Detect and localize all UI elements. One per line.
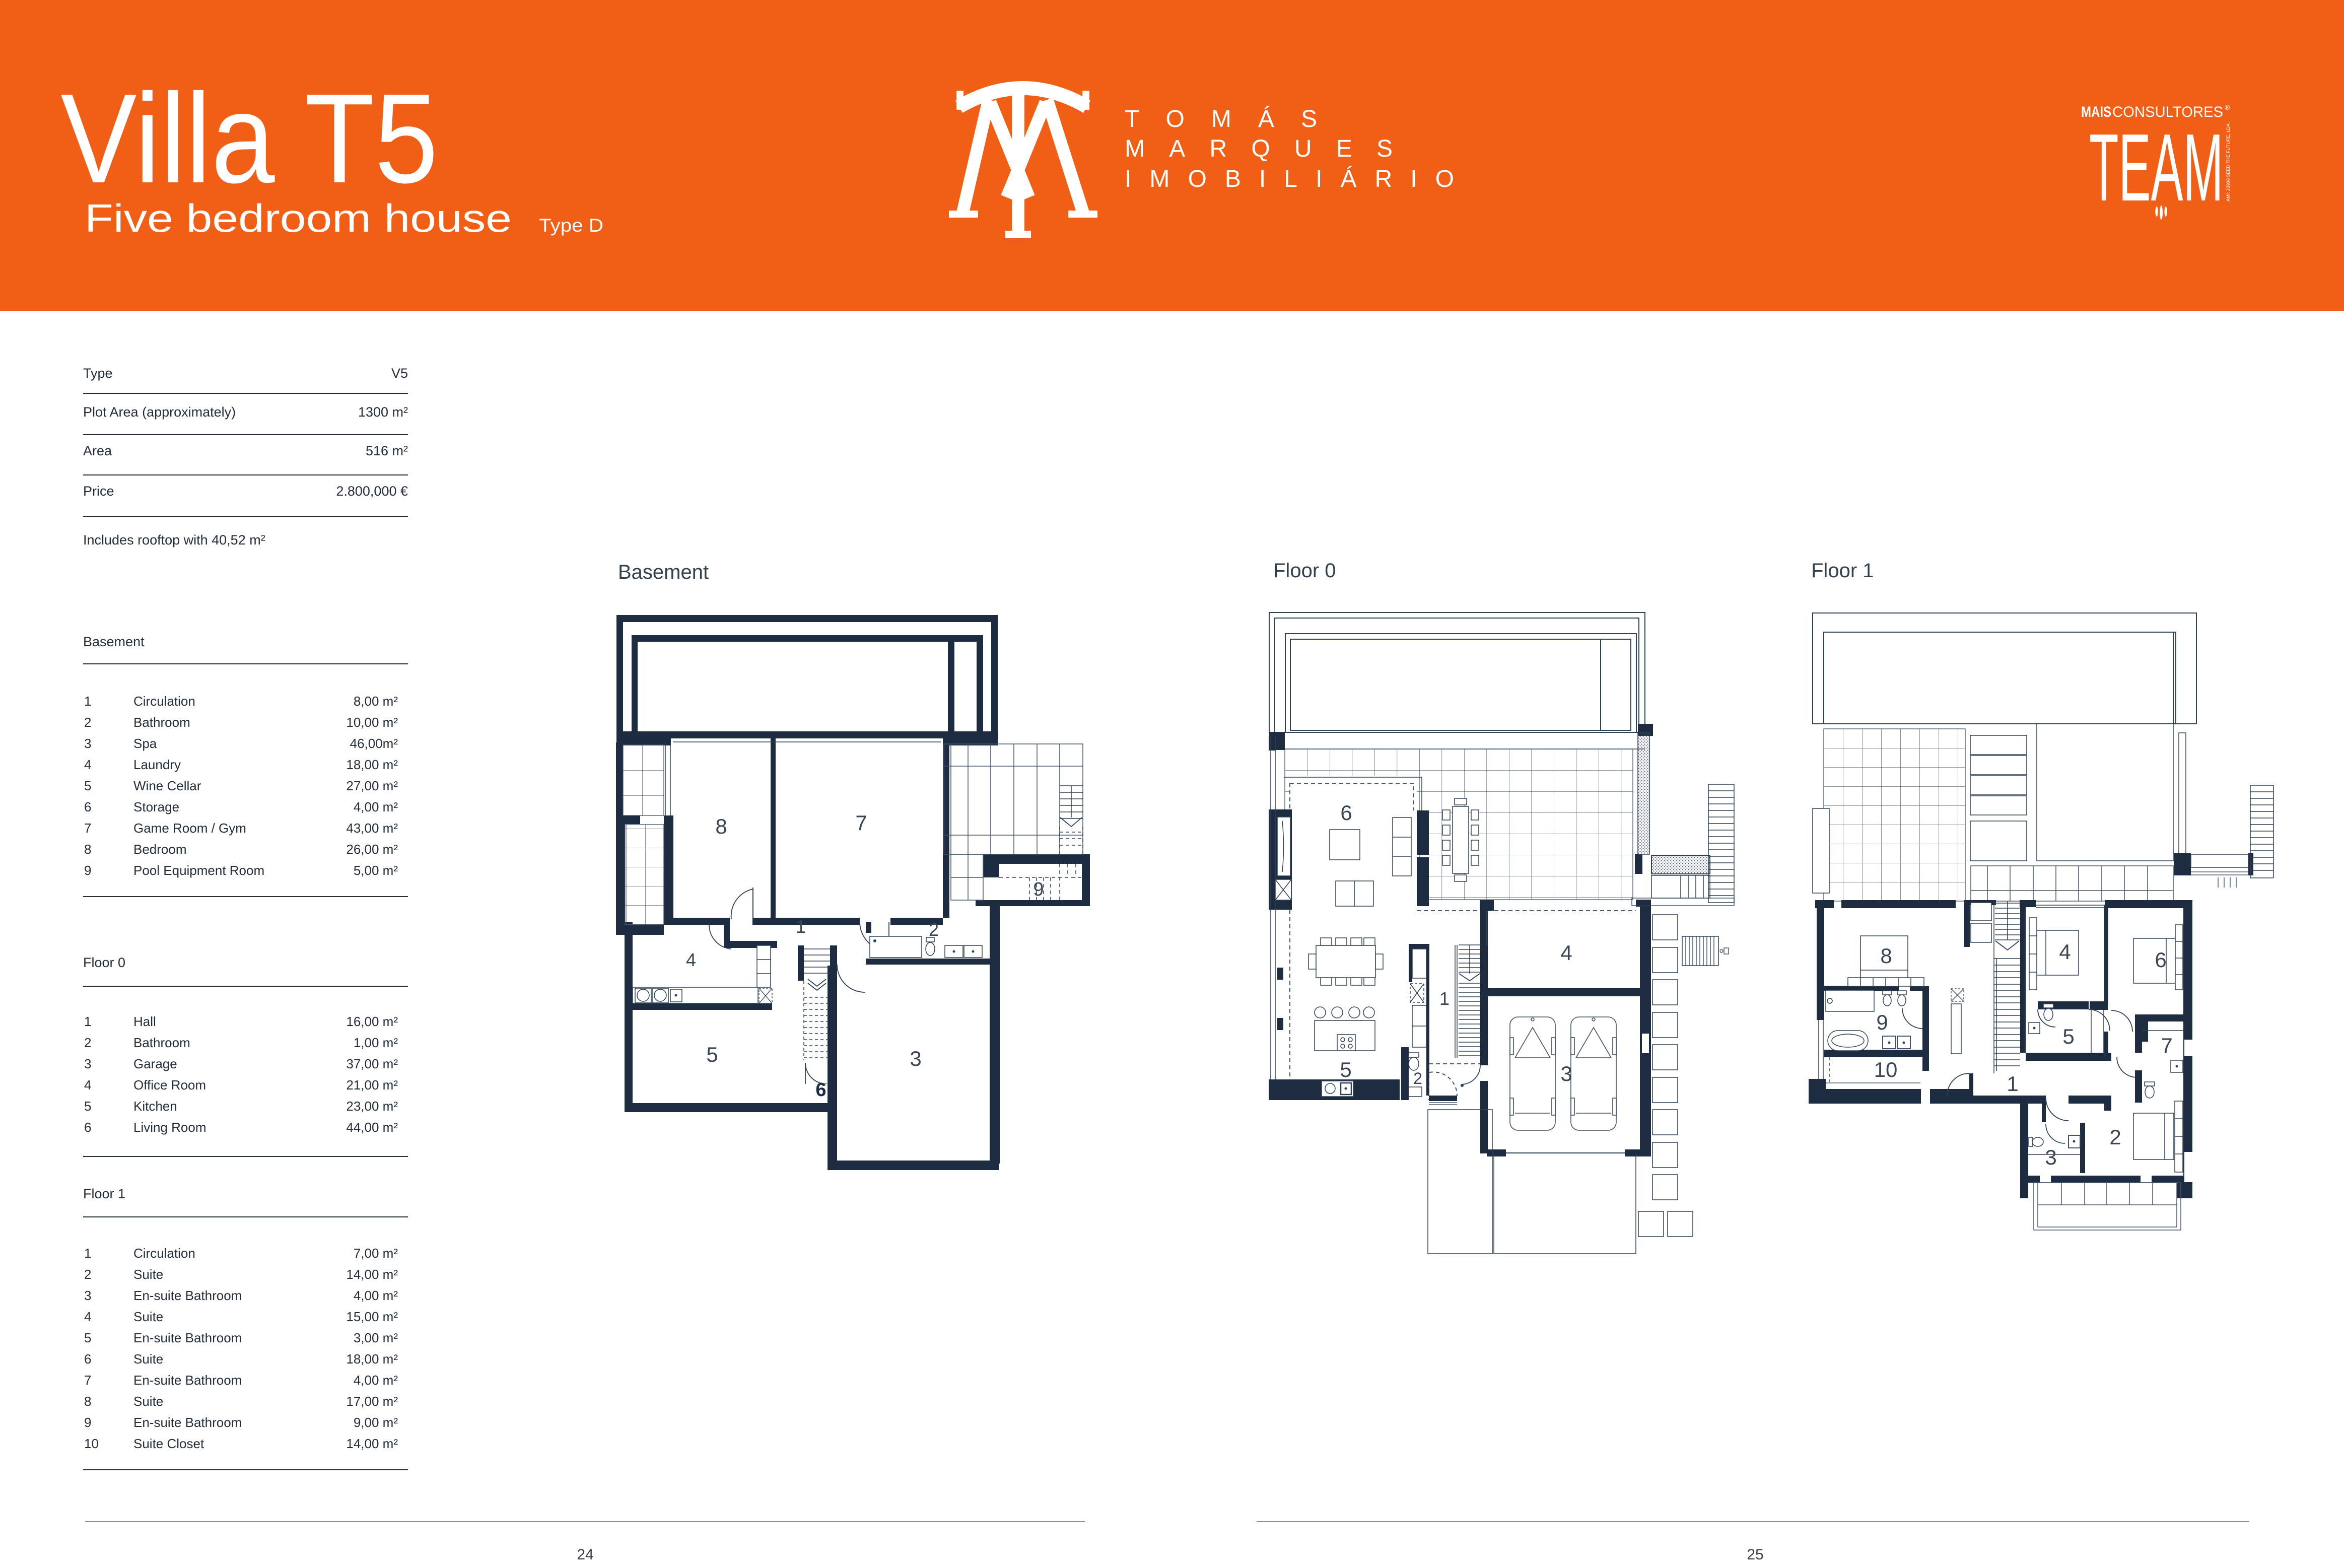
svg-text:4: 4 — [84, 757, 91, 772]
svg-text:Villa T5: Villa T5 — [60, 67, 438, 210]
svg-text:37,00 m²: 37,00 m² — [346, 1056, 398, 1071]
svg-text:44,00 m²: 44,00 m² — [346, 1120, 398, 1135]
svg-text:1: 1 — [1439, 988, 1450, 1009]
svg-text:18,00 m²: 18,00 m² — [346, 757, 398, 772]
svg-text:2: 2 — [84, 1267, 91, 1282]
svg-text:18,00 m²: 18,00 m² — [346, 1351, 398, 1367]
svg-text:16,00 m²: 16,00 m² — [346, 1014, 398, 1029]
svg-text:Includes rooftop with 40,52 m²: Includes rooftop with 40,52 m² — [83, 532, 265, 548]
svg-text:6: 6 — [815, 1079, 826, 1101]
svg-text:En-suite Bathroom: En-suite Bathroom — [133, 1330, 242, 1345]
svg-text:9: 9 — [1033, 879, 1044, 900]
svg-text:En-suite Bathroom: En-suite Bathroom — [133, 1415, 242, 1430]
svg-text:7: 7 — [84, 821, 91, 836]
svg-text:9: 9 — [84, 863, 91, 878]
svg-text:7,00 m²: 7,00 m² — [354, 1246, 398, 1261]
svg-text:26,00 m²: 26,00 m² — [346, 842, 398, 857]
svg-text:Basement: Basement — [618, 561, 709, 583]
svg-text:10: 10 — [84, 1436, 99, 1451]
svg-text:3: 3 — [2045, 1145, 2056, 1169]
svg-text:46,00m²: 46,00m² — [350, 736, 398, 751]
svg-text:21,00 m²: 21,00 m² — [346, 1077, 398, 1093]
svg-text:Floor 1: Floor 1 — [83, 1186, 125, 1201]
svg-text:6: 6 — [84, 1351, 91, 1367]
svg-text:2: 2 — [84, 715, 91, 730]
svg-text:Type: Type — [83, 366, 113, 381]
svg-text:En-suite Bathroom: En-suite Bathroom — [133, 1373, 242, 1388]
svg-text:Hall: Hall — [133, 1014, 156, 1029]
svg-text:Suite: Suite — [133, 1394, 163, 1409]
svg-text:Floor 0: Floor 0 — [83, 955, 125, 970]
svg-text:®: ® — [2225, 103, 2230, 111]
svg-text:Suite: Suite — [133, 1267, 163, 1282]
svg-text:2.800,000 €: 2.800,000 € — [336, 484, 408, 499]
svg-text:Bathroom: Bathroom — [133, 715, 190, 730]
svg-text:25: 25 — [1747, 1546, 1763, 1563]
svg-text:Storage: Storage — [133, 799, 179, 814]
svg-text:Wine Cellar: Wine Cellar — [133, 778, 201, 793]
svg-text:5: 5 — [84, 1099, 91, 1114]
svg-text:1: 1 — [84, 1246, 91, 1261]
svg-text:7: 7 — [84, 1373, 91, 1388]
svg-text:9,00 m²: 9,00 m² — [354, 1415, 398, 1430]
svg-text:17,00 m²: 17,00 m² — [346, 1394, 398, 1409]
svg-text:5: 5 — [2062, 1025, 2074, 1048]
svg-text:1,00 m²: 1,00 m² — [354, 1035, 398, 1050]
svg-text:En-suite Bathroom: En-suite Bathroom — [133, 1288, 242, 1303]
svg-text:5: 5 — [84, 778, 91, 793]
svg-text:6: 6 — [84, 1120, 91, 1135]
svg-text:3: 3 — [84, 736, 91, 751]
svg-text:Floor 0: Floor 0 — [1273, 560, 1336, 582]
svg-text:7: 7 — [2161, 1034, 2172, 1057]
svg-text:Kitchen: Kitchen — [133, 1099, 177, 1114]
svg-text:23,00 m²: 23,00 m² — [346, 1099, 398, 1114]
svg-text:6: 6 — [2155, 948, 2166, 972]
svg-text:Price: Price — [83, 484, 114, 499]
svg-text:4: 4 — [84, 1309, 91, 1324]
svg-text:4: 4 — [686, 949, 696, 970]
svg-text:27,00 m²: 27,00 m² — [346, 778, 398, 793]
svg-text:1: 1 — [796, 916, 806, 937]
svg-text:Living Room: Living Room — [133, 1120, 206, 1135]
svg-text:3: 3 — [84, 1288, 91, 1303]
svg-text:1: 1 — [2007, 1072, 2018, 1096]
svg-text:Circulation: Circulation — [133, 1246, 195, 1261]
svg-text:8: 8 — [715, 814, 727, 838]
svg-text:Garage: Garage — [133, 1056, 177, 1071]
svg-text:TEAM: TEAM — [2089, 114, 2223, 221]
svg-text:10: 10 — [1874, 1058, 1898, 1081]
svg-text:4,00 m²: 4,00 m² — [354, 1288, 398, 1303]
svg-text:4,00 m²: 4,00 m² — [354, 1373, 398, 1388]
svg-text:4,00 m²: 4,00 m² — [354, 799, 398, 814]
svg-text:4: 4 — [84, 1077, 91, 1093]
svg-text:2: 2 — [929, 919, 939, 940]
svg-text:Game Room / Gym: Game Room / Gym — [133, 821, 246, 836]
svg-text:4: 4 — [1560, 941, 1572, 965]
svg-text:6: 6 — [84, 799, 91, 814]
svg-text:1: 1 — [84, 1014, 91, 1029]
svg-text:Office Room: Office Room — [133, 1077, 206, 1093]
svg-text:8: 8 — [1880, 944, 1892, 968]
svg-text:9: 9 — [84, 1415, 91, 1430]
svg-text:5: 5 — [84, 1330, 91, 1345]
svg-text:5: 5 — [1340, 1058, 1351, 1081]
svg-text:3: 3 — [910, 1047, 921, 1070]
svg-text:8: 8 — [84, 842, 91, 857]
svg-text:Pool Equipment Room: Pool Equipment Room — [133, 863, 264, 878]
svg-text:V5: V5 — [391, 366, 408, 381]
svg-text:1: 1 — [84, 694, 91, 709]
svg-text:15,00 m²: 15,00 m² — [346, 1309, 398, 1324]
svg-text:2: 2 — [1413, 1069, 1422, 1087]
svg-text:24: 24 — [577, 1546, 593, 1563]
svg-text:2: 2 — [84, 1035, 91, 1050]
svg-text:Type D: Type D — [539, 215, 603, 236]
svg-text:10,00 m²: 10,00 m² — [346, 715, 398, 730]
svg-text:14,00 m²: 14,00 m² — [346, 1267, 398, 1282]
svg-text:2: 2 — [2109, 1125, 2121, 1149]
svg-text:516 m²: 516 m² — [366, 443, 408, 458]
svg-text:1300 m²: 1300 m² — [358, 404, 408, 420]
svg-text:7: 7 — [855, 811, 867, 835]
svg-text:43,00 m²: 43,00 m² — [346, 821, 398, 836]
svg-text:9: 9 — [1876, 1010, 1888, 1034]
svg-text:Five bedroom house: Five bedroom house — [85, 196, 512, 240]
svg-text:Bedroom: Bedroom — [133, 842, 187, 857]
svg-text:Circulation: Circulation — [133, 694, 195, 709]
svg-text:Laundry: Laundry — [133, 757, 181, 772]
svg-text:5,00 m²: 5,00 m² — [354, 863, 398, 878]
svg-text:3: 3 — [84, 1056, 91, 1071]
svg-text:Spa: Spa — [133, 736, 157, 751]
svg-text:Suite: Suite — [133, 1309, 163, 1324]
svg-text:Suite: Suite — [133, 1351, 163, 1367]
svg-text:AMI: 23990 SEED THE FUTURE, L: AMI: 23990 SEED THE FUTURE, LDA. — [2226, 122, 2231, 201]
svg-text:4: 4 — [2059, 940, 2071, 964]
svg-text:3: 3 — [1560, 1062, 1572, 1085]
svg-text:Suite Closet: Suite Closet — [133, 1436, 204, 1451]
svg-text:8,00 m²: 8,00 m² — [354, 694, 398, 709]
svg-text:6: 6 — [1340, 801, 1352, 825]
svg-text:3,00 m²: 3,00 m² — [354, 1330, 398, 1345]
svg-text:Basement: Basement — [83, 634, 145, 649]
svg-text:Floor 1: Floor 1 — [1811, 560, 1874, 582]
svg-text:Plot Area (approximately): Plot Area (approximately) — [83, 404, 236, 420]
svg-text:Area: Area — [83, 443, 112, 458]
svg-text:8: 8 — [84, 1394, 91, 1409]
svg-text:Bathroom: Bathroom — [133, 1035, 190, 1050]
svg-text:5: 5 — [706, 1043, 718, 1066]
svg-text:14,00 m²: 14,00 m² — [346, 1436, 398, 1451]
